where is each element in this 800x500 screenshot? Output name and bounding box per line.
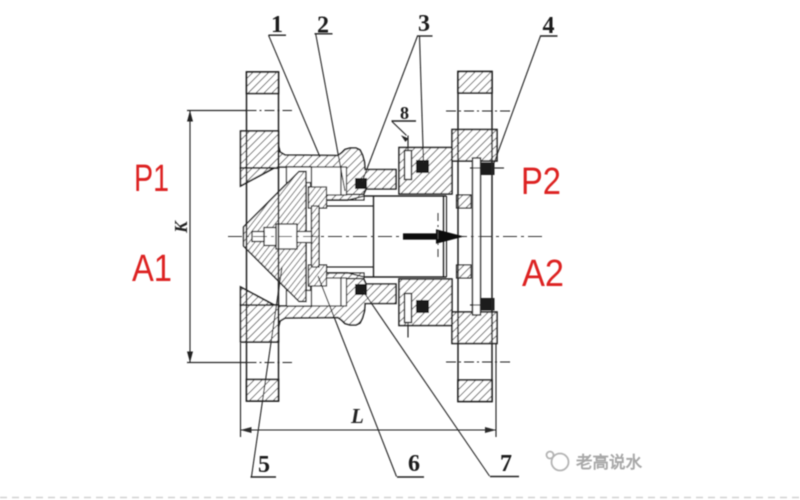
svg-text:1: 1 bbox=[271, 12, 283, 38]
svg-text:7: 7 bbox=[500, 451, 512, 477]
svg-text:3: 3 bbox=[418, 11, 430, 37]
svg-text:4: 4 bbox=[543, 13, 555, 39]
svg-text:2: 2 bbox=[317, 13, 329, 39]
svg-text:L: L bbox=[350, 404, 364, 428]
svg-text:A1: A1 bbox=[132, 248, 172, 290]
svg-text:6: 6 bbox=[408, 451, 420, 477]
svg-text:P1: P1 bbox=[134, 158, 169, 200]
svg-text:K: K bbox=[171, 220, 191, 234]
svg-text:8: 8 bbox=[400, 103, 409, 123]
svg-text:A2: A2 bbox=[522, 253, 564, 295]
svg-text:P2: P2 bbox=[521, 161, 561, 203]
svg-text:老高说水: 老高说水 bbox=[575, 452, 643, 472]
svg-text:5: 5 bbox=[258, 452, 270, 478]
